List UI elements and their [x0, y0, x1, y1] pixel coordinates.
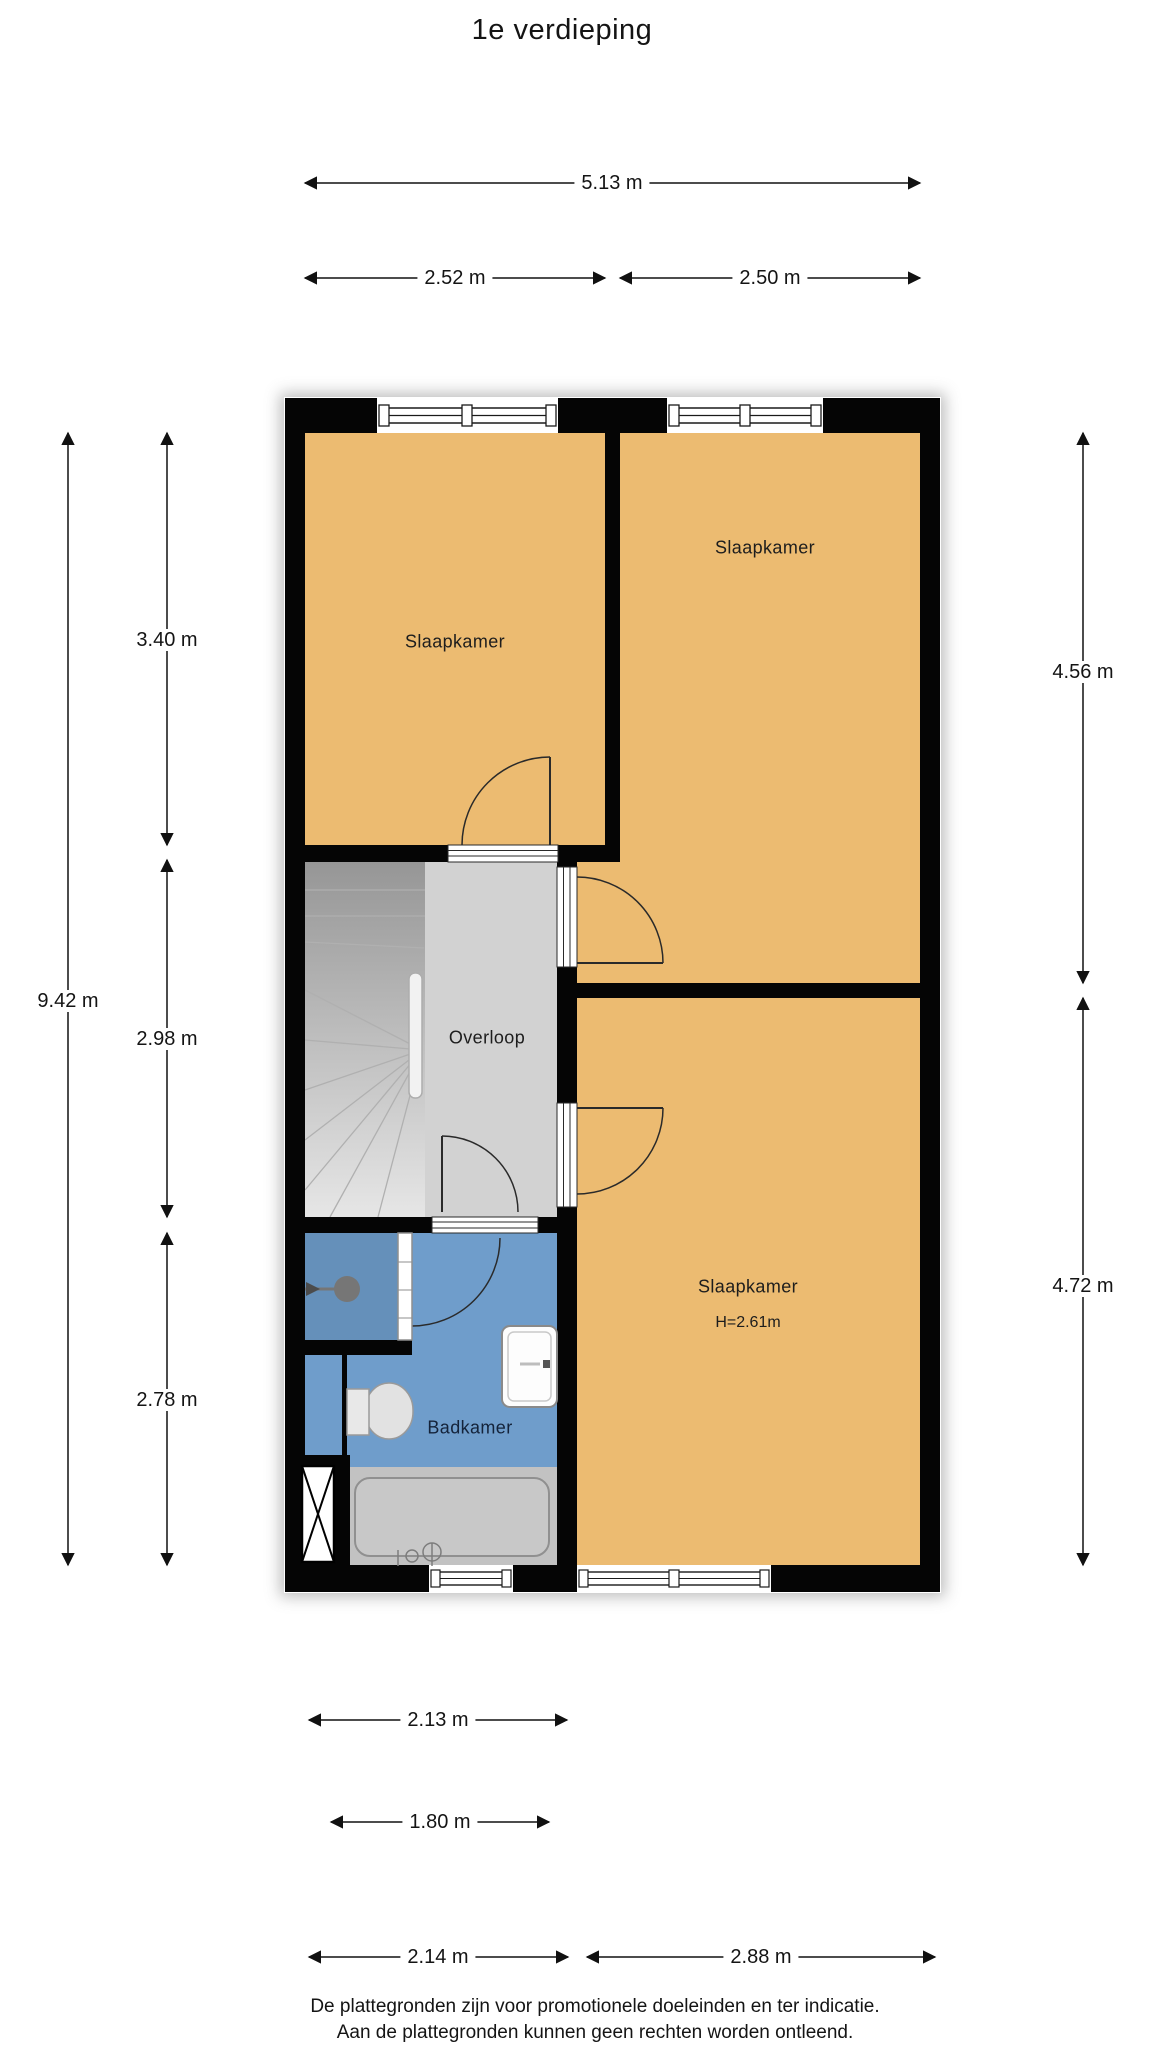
room-label-bathroom: Badkamer	[427, 1418, 512, 1439]
doorway-bedroom-top-left	[448, 845, 558, 862]
room-label-bedroom-top-right: Slaapkamer	[715, 538, 815, 559]
room-label-bedroom-bottom-right: Slaapkamer	[698, 1277, 798, 1298]
shower-screen	[398, 1233, 412, 1340]
staircase	[305, 862, 425, 1217]
dim-top-total: 5.13 m	[574, 172, 649, 194]
window-top-right	[667, 398, 823, 433]
dim-bottom-row3-right: 2.88 m	[723, 1946, 798, 1968]
dim-bottom-row1: 2.13 m	[400, 1709, 475, 1731]
washbasin	[502, 1326, 557, 1407]
room-height-note: H=2.61m	[715, 1314, 780, 1332]
disclaimer-line2: Aan de plattegronden kunnen geen rechten…	[310, 2020, 879, 2046]
toilet	[347, 1383, 413, 1439]
dim-top-right: 2.50 m	[732, 267, 807, 289]
dim-left-total: 9.42 m	[30, 990, 105, 1012]
floor-plan-graphic	[0, 0, 1152, 2048]
bathtub	[355, 1478, 549, 1566]
dim-left-middle: 2.98 m	[129, 1028, 204, 1050]
room-label-bedroom-top-left: Slaapkamer	[405, 632, 505, 653]
stair-handrail	[409, 973, 422, 1098]
window-bottom-bedroom	[577, 1565, 771, 1592]
dim-right-top: 4.56 m	[1045, 661, 1120, 683]
doorway-bathroom	[432, 1217, 538, 1233]
disclaimer: De plattegronden zijn voor promotionele …	[310, 1994, 879, 2046]
dim-bottom-row2: 1.80 m	[402, 1811, 477, 1833]
room-label-hallway: Overloop	[449, 1028, 525, 1049]
doorway-bedroom-top-right	[557, 867, 577, 967]
doorway-bedroom-bottom-right	[557, 1103, 577, 1207]
dim-left-top: 3.40 m	[129, 629, 204, 651]
dim-top-left: 2.52 m	[417, 267, 492, 289]
shaft-box	[302, 1466, 334, 1562]
dim-left-bottom: 2.78 m	[129, 1389, 204, 1411]
window-top-left	[377, 398, 558, 433]
window-bottom-bathroom	[429, 1565, 513, 1592]
dim-right-bottom: 4.72 m	[1045, 1275, 1120, 1297]
disclaimer-line1: De plattegronden zijn voor promotionele …	[310, 1994, 879, 2020]
dim-bottom-row3-left: 2.14 m	[400, 1946, 475, 1968]
